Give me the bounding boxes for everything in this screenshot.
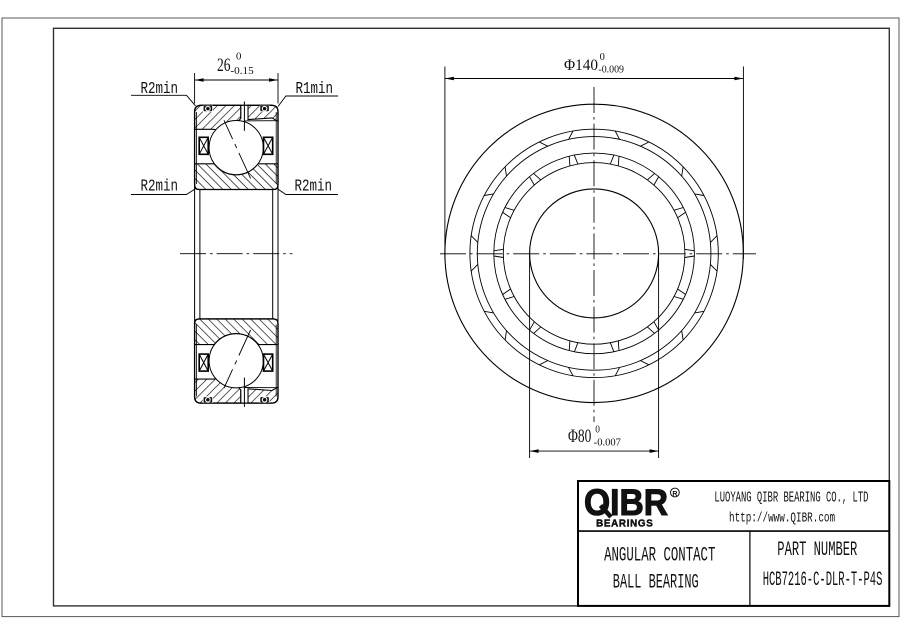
svg-text:0: 0: [236, 51, 241, 62]
svg-text:R: R: [672, 491, 677, 498]
svg-text:0: 0: [600, 52, 605, 63]
svg-text:0: 0: [595, 424, 600, 435]
svg-text:R2min: R2min: [295, 176, 333, 195]
svg-text:OIBR: OIBR: [584, 482, 668, 523]
svg-text:-0.009: -0.009: [598, 65, 624, 76]
svg-text:26: 26: [217, 55, 231, 76]
svg-text:-0.007: -0.007: [594, 438, 621, 449]
svg-text:R2min: R2min: [141, 176, 179, 195]
svg-text:-0.15: -0.15: [230, 66, 253, 77]
svg-text:LUOYANG QIBR BEARING CO., LTD: LUOYANG QIBR BEARING CO., LTD: [714, 490, 868, 507]
svg-text:Φ80: Φ80: [568, 427, 591, 447]
svg-text:PART NUMBER: PART NUMBER: [777, 539, 857, 562]
svg-text:http://www.QIBR.com: http://www.QIBR.com: [729, 511, 835, 527]
svg-text:BEARINGS: BEARINGS: [596, 519, 653, 530]
svg-text:BALL BEARING: BALL BEARING: [613, 571, 699, 594]
svg-text:R1min: R1min: [296, 79, 334, 98]
svg-text:HCB7216-C-DLR-T-P4S: HCB7216-C-DLR-T-P4S: [763, 569, 883, 592]
svg-text:Φ140: Φ140: [564, 55, 598, 74]
svg-text:ANGULAR CONTACT: ANGULAR CONTACT: [604, 544, 715, 567]
